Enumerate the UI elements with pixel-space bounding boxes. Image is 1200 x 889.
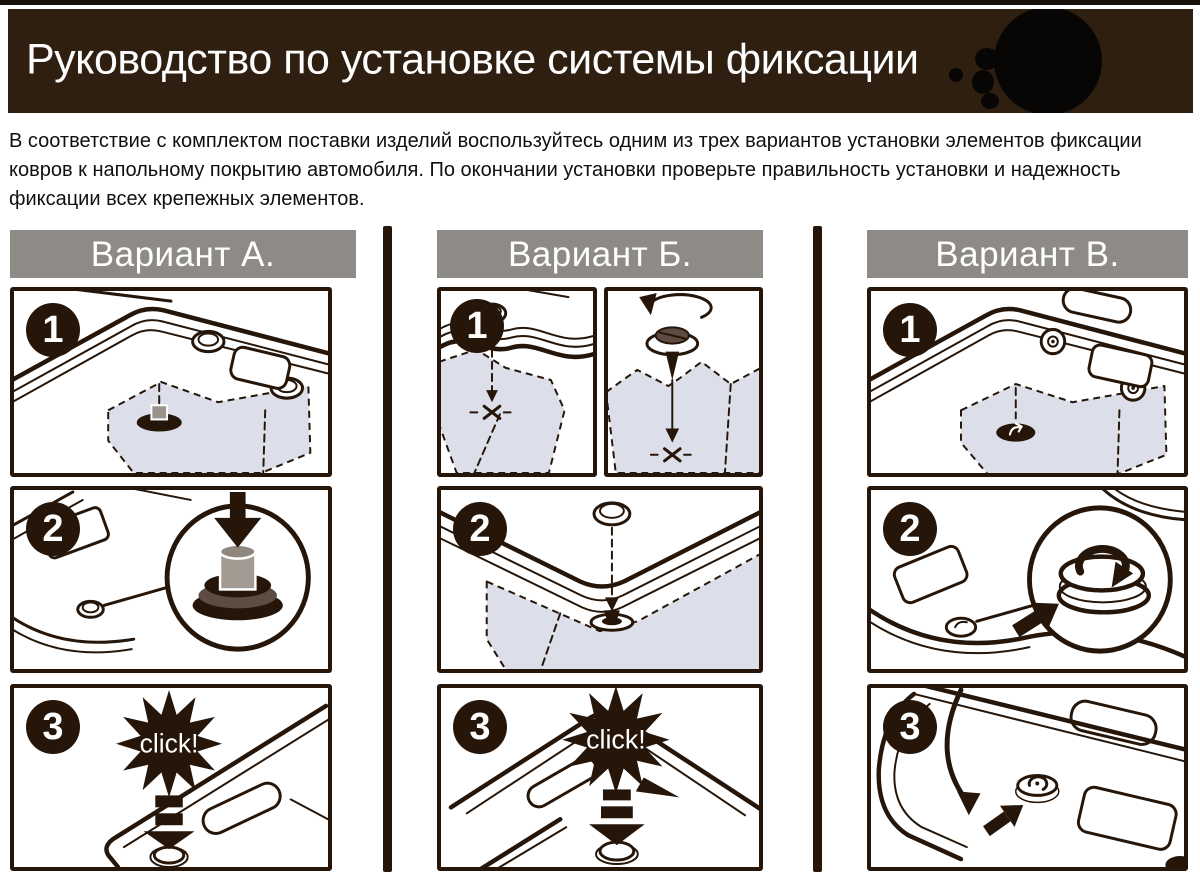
step-badge: 2 xyxy=(26,502,80,556)
variant-a-step-2-panel: 2 xyxy=(10,486,332,673)
step-number: 1 xyxy=(42,309,63,352)
step-badge: 3 xyxy=(883,700,937,754)
step-badge: 3 xyxy=(26,700,80,754)
press-down-arrow-icon xyxy=(230,492,246,520)
variant-a-header: Вариант А. xyxy=(10,230,356,278)
step-number: 1 xyxy=(466,305,487,348)
variant-b-step-1b-panel xyxy=(604,287,763,477)
hook-fastener xyxy=(946,618,975,636)
step-badge: 1 xyxy=(26,303,80,357)
variant-a-step-3-panel: click! 3 xyxy=(10,684,332,871)
carpet-patch xyxy=(608,362,759,473)
variant-b-step-1b-illustration xyxy=(608,291,759,473)
mat-button xyxy=(154,847,183,863)
variant-b-step-1a-panel: 1 xyxy=(437,287,597,477)
mat-hole xyxy=(524,754,600,811)
mat-hole xyxy=(199,779,284,838)
click-label: click! xyxy=(586,725,646,755)
press-down-arrow-icon xyxy=(603,789,631,800)
intro-text: В соответствие с комплектом поставки изд… xyxy=(9,127,1195,214)
variant-b-header: Вариант Б. xyxy=(437,230,763,278)
column-divider xyxy=(813,226,822,872)
step-number: 3 xyxy=(469,706,490,749)
hook-fastener xyxy=(996,423,1035,441)
mat-hole xyxy=(1088,343,1154,388)
mat-button xyxy=(193,331,224,351)
carpet-patch xyxy=(441,350,565,473)
step-badge: 2 xyxy=(883,502,937,556)
mat-hole xyxy=(1076,785,1178,851)
step-number: 2 xyxy=(42,508,63,551)
step-badge: 1 xyxy=(450,299,504,353)
instruction-sheet: Руководство по установке системы фиксаци… xyxy=(0,0,1200,889)
step-number: 3 xyxy=(42,706,63,749)
header-bar: Руководство по установке системы фиксаци… xyxy=(8,9,1193,113)
top-edge-strip xyxy=(0,0,1200,5)
hook-fastener xyxy=(1018,776,1057,796)
insert-arrow-icon xyxy=(979,794,1030,841)
variant-v-step-3-panel: 3 xyxy=(867,684,1188,871)
variant-b-step-3-panel: click! 3 xyxy=(437,684,763,871)
redacted-logo xyxy=(8,9,1193,113)
mat-button xyxy=(594,503,630,525)
variant-a-step-1-panel: 1 xyxy=(10,287,332,477)
rotate-arrow-icon xyxy=(651,295,711,318)
step-badge: 1 xyxy=(883,303,937,357)
variant-v-step-2-panel: 2 xyxy=(867,486,1188,673)
variant-b-step-2-panel: 2 xyxy=(437,486,763,673)
variant-v-header: Вариант В. xyxy=(867,230,1188,278)
step-badge: 3 xyxy=(453,700,507,754)
step-number: 2 xyxy=(469,508,490,551)
column-divider xyxy=(383,226,392,872)
step-number: 3 xyxy=(899,706,920,749)
mat-button xyxy=(78,601,104,617)
click-label: click! xyxy=(140,728,199,758)
step-number: 2 xyxy=(899,508,920,551)
step-number: 1 xyxy=(899,309,920,352)
step-badge: 2 xyxy=(453,502,507,556)
variant-v-step-1-panel: 1 xyxy=(867,287,1188,477)
